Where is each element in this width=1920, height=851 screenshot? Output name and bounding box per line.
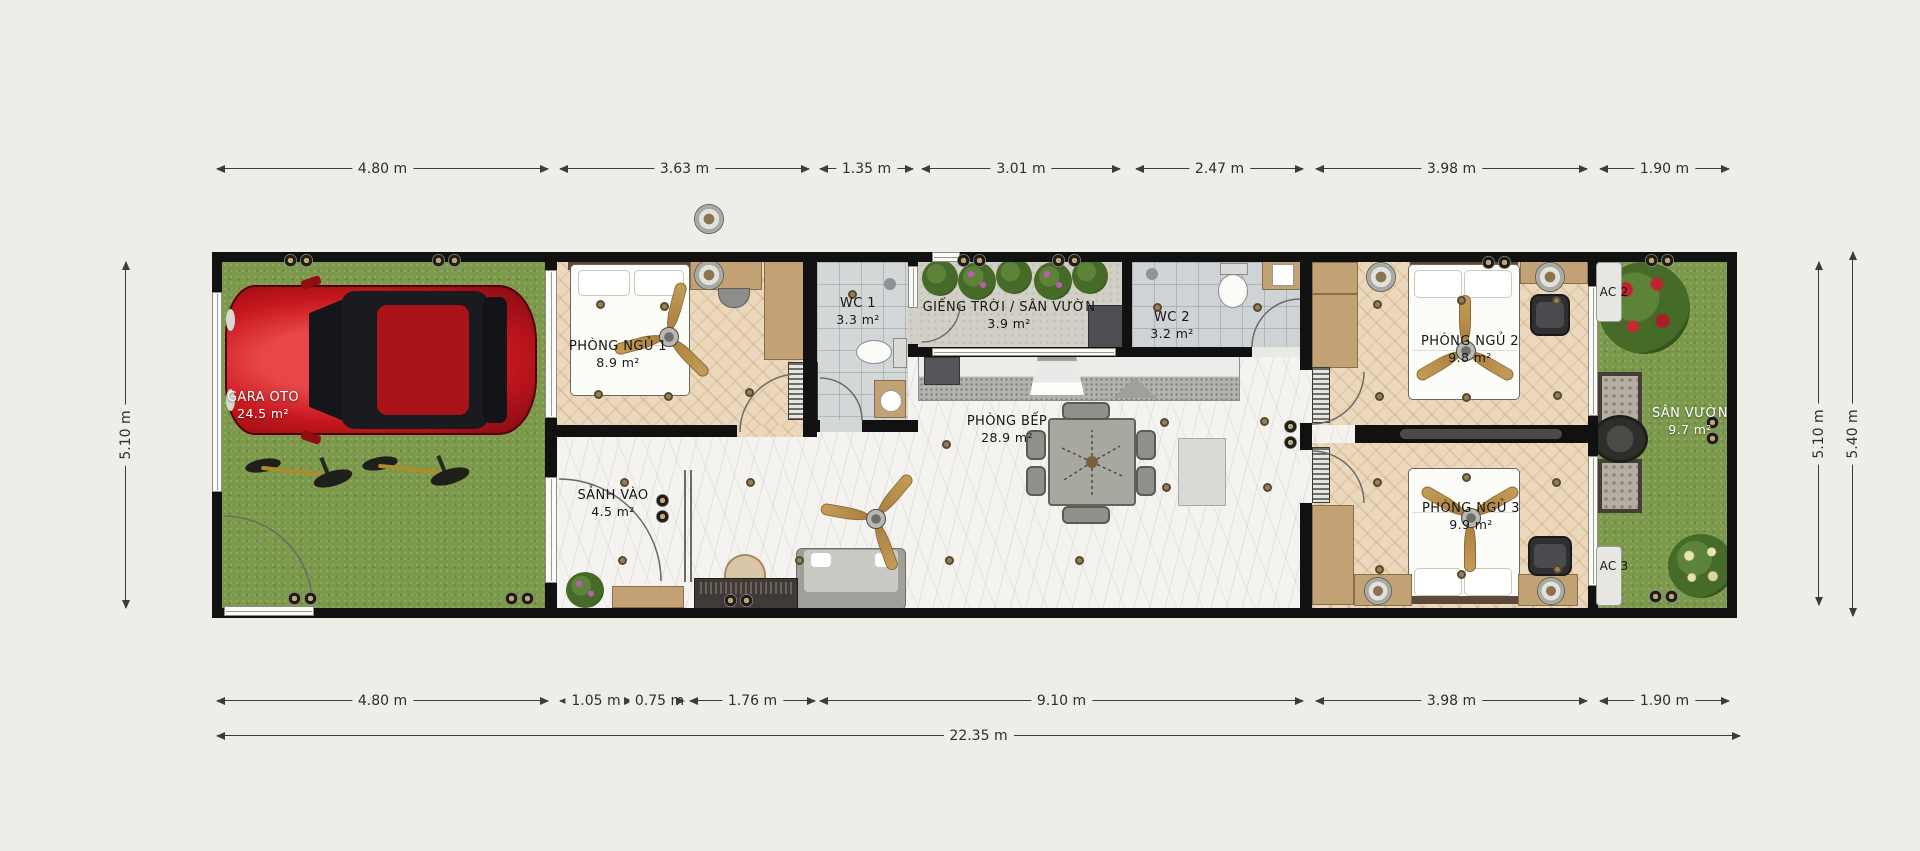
skylight-label: GIẾNG TRỜI / SÂN VƯỜN 3.9 m² xyxy=(923,300,1096,332)
dim-right-outer-value: 5.40 m xyxy=(1845,403,1861,464)
dim-total-value: 22.35 m xyxy=(943,728,1013,744)
ceiling-spot xyxy=(1375,565,1384,574)
dim-total: 22.35 m xyxy=(217,735,1740,736)
dim-top-5: 2.47 m xyxy=(1136,168,1303,169)
ceiling-spot xyxy=(1553,565,1562,574)
wc2-label: WC 2 3.2 m² xyxy=(1150,310,1193,342)
ceiling-spot xyxy=(1462,393,1471,402)
garage-name: GARA OTO xyxy=(227,390,299,406)
bedroom3-area: 9.9 m² xyxy=(1422,517,1520,533)
dim-top-1-value: 4.80 m xyxy=(352,161,413,177)
wc1-label: WC 1 3.3 m² xyxy=(836,296,879,328)
bedroom1-name: PHÒNG NGỦ 1 xyxy=(569,339,667,355)
wall-spotlights xyxy=(288,592,317,605)
dim-bottom-3: 0.75 m xyxy=(635,700,684,701)
ceiling-spot xyxy=(618,556,627,565)
ceiling-spot xyxy=(620,478,629,487)
ceiling-spot xyxy=(1373,478,1382,487)
dim-bottom-4-value: 1.76 m xyxy=(722,693,783,709)
dim-right-outer: 5.40 m xyxy=(1852,252,1853,616)
bedroom1-label: PHÒNG NGỦ 1 8.9 m² xyxy=(569,339,667,371)
ceiling-spot xyxy=(1160,418,1169,427)
dim-top-1: 4.80 m xyxy=(217,168,548,169)
dim-right-inner: 5.10 m xyxy=(1818,262,1819,605)
ceiling-spot xyxy=(942,440,951,449)
dim-bottom-2-value: 1.05 m xyxy=(565,693,626,709)
dim-bottom-4: 1.76 m xyxy=(690,700,815,701)
dim-top-5-value: 2.47 m xyxy=(1189,161,1250,177)
wc2-name: WC 2 xyxy=(1150,310,1193,326)
dim-bottom-1-value: 4.80 m xyxy=(352,693,413,709)
dim-left: 5.10 m xyxy=(125,262,126,608)
dim-top-7: 1.90 m xyxy=(1600,168,1729,169)
wall-spotlights xyxy=(957,254,986,267)
garden-label: SÂN VƯỜN 9.7 m² xyxy=(1652,406,1728,438)
ceiling-spot xyxy=(746,478,755,487)
skylight-name: GIẾNG TRỜI / SÂN VƯỜN xyxy=(923,300,1096,316)
ceiling-spot xyxy=(594,390,603,399)
dim-bottom-5-value: 9.10 m xyxy=(1031,693,1092,709)
dim-bottom-6-value: 3.98 m xyxy=(1421,693,1482,709)
ceiling-spot xyxy=(1253,303,1262,312)
dim-top-3: 1.35 m xyxy=(820,168,913,169)
ceiling-spot xyxy=(1263,483,1272,492)
dim-bottom-5: 9.10 m xyxy=(820,700,1303,701)
dim-right-inner-value: 5.10 m xyxy=(1811,403,1827,464)
wc2-area: 3.2 m² xyxy=(1150,326,1193,342)
wall-spotlights xyxy=(1482,256,1511,269)
dim-top-2-value: 3.63 m xyxy=(654,161,715,177)
ac2-label: AC 2 xyxy=(1600,285,1629,300)
ceiling-spot xyxy=(1375,392,1384,401)
floor-plan-canvas: GARA OTO 24.5 m² PHÒNG NGỦ 1 8.9 m² SẢNH… xyxy=(0,0,1920,851)
kitchen-label: PHÒNG BẾP 28.9 m² xyxy=(967,414,1047,446)
entry-area: 4.5 m² xyxy=(578,504,649,520)
wall-spotlights xyxy=(1284,420,1297,449)
dim-bottom-2: 1.05 m xyxy=(560,700,632,701)
wall-spotlights xyxy=(505,592,534,605)
garage-label: GARA OTO 24.5 m² xyxy=(227,390,299,422)
ceiling-spot xyxy=(660,302,669,311)
ceiling-spot xyxy=(1462,473,1471,482)
ceiling-spot xyxy=(1373,300,1382,309)
dim-bottom-6: 3.98 m xyxy=(1316,700,1587,701)
dim-bottom-7: 1.90 m xyxy=(1600,700,1729,701)
ceiling-spot xyxy=(745,388,754,397)
ceiling-spot xyxy=(945,556,954,565)
door-swing-arcs xyxy=(0,0,1920,851)
garden-name: SÂN VƯỜN xyxy=(1652,406,1728,422)
entry-name: SẢNH VÀO xyxy=(578,488,649,504)
bedroom2-name: PHÒNG NGỦ 2 xyxy=(1421,334,1519,350)
wc1-area: 3.3 m² xyxy=(836,312,879,328)
skylight-area: 3.9 m² xyxy=(923,316,1096,332)
wall-spotlights xyxy=(1052,254,1081,267)
ceiling-spot xyxy=(1552,478,1561,487)
dim-bottom-1: 4.80 m xyxy=(217,700,548,701)
wall-spotlights xyxy=(656,494,669,523)
dim-bottom-7-value: 1.90 m xyxy=(1634,693,1695,709)
bedroom2-area: 9.8 m² xyxy=(1421,350,1519,366)
wall-spotlights xyxy=(432,254,461,267)
garden-area: 9.7 m² xyxy=(1652,422,1728,438)
dim-top-2: 3.63 m xyxy=(560,168,809,169)
ac3-label: AC 3 xyxy=(1600,559,1629,574)
dim-top-6: 3.98 m xyxy=(1316,168,1587,169)
entry-label: SẢNH VÀO 4.5 m² xyxy=(578,488,649,520)
ceiling-spot xyxy=(1553,391,1562,400)
wc1-name: WC 1 xyxy=(836,296,879,312)
dim-left-value: 5.10 m xyxy=(118,404,134,465)
bedroom2-label: PHÒNG NGỦ 2 9.8 m² xyxy=(1421,334,1519,366)
dim-top-4-value: 3.01 m xyxy=(990,161,1051,177)
floor-plan-screenshot: { "rooms": { "garage": {"name": "GARA OT… xyxy=(0,0,1920,851)
kitchen-area: 28.9 m² xyxy=(967,430,1047,446)
ceiling-spot xyxy=(596,300,605,309)
kitchen-name: PHÒNG BẾP xyxy=(967,414,1047,430)
dim-top-6-value: 3.98 m xyxy=(1421,161,1482,177)
bedroom1-area: 8.9 m² xyxy=(569,355,667,371)
ceiling-spot xyxy=(1552,296,1561,305)
dim-top-4: 3.01 m xyxy=(922,168,1120,169)
ceiling-spot xyxy=(1162,483,1171,492)
wall-spotlights xyxy=(284,254,313,267)
bedroom3-name: PHÒNG NGỦ 3 xyxy=(1422,501,1520,517)
ceiling-spot xyxy=(1457,296,1466,305)
garage-area: 24.5 m² xyxy=(227,406,299,422)
ac3-name: AC 3 xyxy=(1600,559,1629,574)
console-speakers xyxy=(724,594,753,607)
ac2-name: AC 2 xyxy=(1600,285,1629,300)
ceiling-spot xyxy=(1457,570,1466,579)
dim-bottom-3-value: 0.75 m xyxy=(629,693,690,709)
wall-spotlights xyxy=(1645,254,1674,267)
dim-top-3-value: 1.35 m xyxy=(836,161,897,177)
ceiling-spot xyxy=(1260,417,1269,426)
ceiling-spot xyxy=(1075,556,1084,565)
ceiling-spot xyxy=(795,556,804,565)
bedroom3-label: PHÒNG NGỦ 3 9.9 m² xyxy=(1422,501,1520,533)
wall-spotlights xyxy=(1649,590,1678,603)
ceiling-spot xyxy=(664,392,673,401)
dim-top-7-value: 1.90 m xyxy=(1634,161,1695,177)
